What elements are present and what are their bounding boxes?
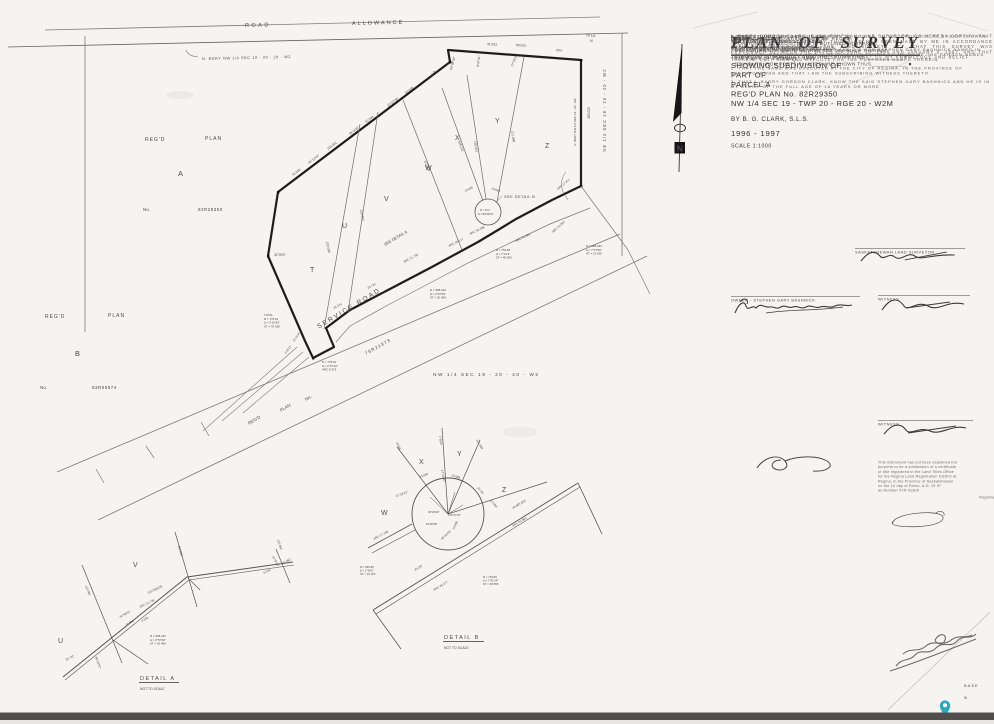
dim: 13.096 xyxy=(451,520,459,530)
ne-quarter-label: NE 1/4 SEC 19 - 20 - 20 - W2 xyxy=(602,68,607,151)
dim: 43°13'42" xyxy=(307,153,320,164)
dim: ARC 51.801 xyxy=(551,220,566,234)
dim: 135.021 xyxy=(473,141,479,153)
curve-mid-2: ST = 20.469 xyxy=(430,296,446,300)
dim: 112.882 xyxy=(177,545,184,557)
road-allowance-north-line xyxy=(45,17,600,30)
nw-quarter-label: NW 1/4 SEC 19 - 20 - 20 - W2 xyxy=(433,372,540,378)
dim: 46.665 (23) xyxy=(511,499,526,510)
culdesac-radius: R = 15.0 xyxy=(480,208,490,212)
dim: 34°09'0" xyxy=(274,253,286,257)
tp-corner-label: TP 1/4 xyxy=(586,34,596,38)
dim: ARC 45.177 xyxy=(448,237,465,248)
east-boundary-labels: E. BDRY NW 1/4 SEC 19 - 20 - W2 150.013 … xyxy=(551,68,607,233)
detail-b-leader xyxy=(496,196,502,202)
regd-road-word2: PLAN xyxy=(279,403,292,413)
b leader-curl xyxy=(186,50,198,57)
signature-stroke xyxy=(733,38,777,42)
road-tick xyxy=(146,446,154,458)
curve-upper-2: ST = 48.563 xyxy=(496,256,512,260)
regd-road-no: No. xyxy=(304,394,313,402)
dim: 9°47'41" xyxy=(476,55,481,67)
dim: 28.0 xyxy=(556,48,563,52)
affidavit-item: 3. THAT I, BARRY GORDON CLARK, KNOW THE … xyxy=(731,80,993,90)
curve-east-2: ST = 13.638 xyxy=(586,252,602,256)
smudge xyxy=(928,13,988,31)
lot-label-v: V xyxy=(384,196,389,203)
dim: ARC 27.313 xyxy=(556,178,571,191)
detail-b-road-corner-sw xyxy=(373,610,401,649)
iron-post xyxy=(267,255,269,257)
dim: 48°34'53" xyxy=(440,529,452,541)
dim: 86°52'57" xyxy=(94,656,102,669)
detail-a-lot-u: U xyxy=(58,638,63,645)
detail-a-title: DETAIL A xyxy=(140,676,176,682)
road-allowance-label-allowance: ALLOWANCE xyxy=(352,20,404,27)
dim: 80.003 xyxy=(516,43,526,48)
regd-label: REG'D xyxy=(45,314,65,320)
plan-label: PLAN xyxy=(205,136,222,142)
commissioner-signature xyxy=(751,452,841,478)
dim: 115.088 xyxy=(325,241,331,253)
dim: 150.013 xyxy=(587,107,591,119)
dim: ARC 45.177 xyxy=(432,580,448,592)
dim: 17°22'30" xyxy=(440,469,447,482)
subtitle-line: REG'D PLAN No. 82R29350 xyxy=(731,90,993,100)
scale-label: SCALE 1:1000 xyxy=(731,143,993,149)
detail-a-lot-v: V xyxy=(133,562,138,569)
north-arrow-blade xyxy=(673,44,682,122)
witness2-signature-block: WITNESS xyxy=(878,420,973,427)
dim: 5.034 xyxy=(263,568,272,575)
detail-a-crossing-2 xyxy=(175,532,197,607)
signature-stroke xyxy=(785,457,830,471)
lot-line-v-w xyxy=(403,100,462,250)
dim: 113.962 xyxy=(359,209,365,221)
dim: 60.08 xyxy=(395,442,402,451)
dim: 13.060 xyxy=(419,472,429,479)
detail-b-lot-y: Y xyxy=(457,451,462,458)
north-arrow: N xyxy=(673,44,686,172)
subtitle-line: NW 1/4 SEC 19 - TWP 20 - RGE 20 - W2M xyxy=(731,99,993,109)
commissioner-block: A COMMISSIONER FOR OATHS IN AND FOR THE … xyxy=(731,34,993,51)
title-and-certificates-panel: PLAN OF SURVEY SHOWING SUBDIVISION OF PA… xyxy=(731,34,994,724)
roads xyxy=(57,186,650,520)
see-detail-a-label: SEE DETAIL A xyxy=(383,229,408,247)
parcel-a-letter: A xyxy=(178,169,183,178)
dim: 110.682 xyxy=(276,539,284,551)
signature-stroke xyxy=(882,300,964,310)
dim: 13°51'08" xyxy=(292,331,302,342)
stamp-line: as Number 97R 01309 xyxy=(878,488,994,493)
registrar-label: Registrar xyxy=(878,495,994,500)
parcel-b-letter: B xyxy=(75,349,80,358)
dim: 13.005 xyxy=(464,185,474,193)
registration-stamp: This instrument has not been examined bu… xyxy=(878,460,994,500)
subdivision-boundary xyxy=(267,50,582,359)
dim: 27.084 xyxy=(489,499,498,509)
sworn-date-line: THIS 6 DAY OF February , 1997 xyxy=(731,53,993,64)
detail-b-subtitle: NOT TO SCALE xyxy=(444,646,469,650)
owner-signature xyxy=(731,296,856,318)
cul-de-sac-circle xyxy=(475,199,501,225)
dim: 44°58'31" xyxy=(119,609,132,619)
detail-b-spoke-4 xyxy=(448,482,547,514)
road-78R21573-north-edge xyxy=(57,234,620,472)
section-line-north xyxy=(8,33,628,47)
parcel-a-number: 82R29350 xyxy=(198,207,223,212)
parcel-outline xyxy=(268,50,581,358)
north-boundary-label: N. BDRY NW 1/4 SEC 19 - 20 - 20 - W2 xyxy=(202,55,291,61)
plan-label: PLAN xyxy=(108,313,125,319)
detail-a-spur-2 xyxy=(188,578,200,590)
north-letter: N xyxy=(677,144,683,154)
witness-signature-block: WITNESS xyxy=(878,295,970,302)
dim: 67°8'10" xyxy=(271,556,280,568)
dim: ARC 21.730 xyxy=(403,253,420,264)
surveyor-byline: BY B. G. CLARK, S.L.S. xyxy=(731,116,993,123)
lot-lines xyxy=(324,57,524,329)
detail-b-block-right-2: ST = 48.565 xyxy=(483,582,499,586)
detail-b-road-main xyxy=(373,483,578,610)
detail-b-road-main-2 xyxy=(376,487,580,614)
dim: 31.003 xyxy=(487,42,497,47)
east-boundary-label: E. BDRY NW 1/4 SEC 19 - 20 - W2 xyxy=(573,98,577,145)
detail-a-spur-1 xyxy=(113,640,148,664)
service-road-south-edge xyxy=(336,208,590,342)
sworn-date-post: , 1997 xyxy=(799,56,815,61)
registrar-signature xyxy=(884,507,949,530)
dim: 21°32'23" xyxy=(395,490,408,498)
tp-corner-label-2: M xyxy=(590,39,593,43)
surveyor-signature-block: SASKATCHEWAN LAND SURVEYOR xyxy=(855,248,965,255)
affidavit-item: 2. THAT THE SAME WAS EXECUTED AT THE CIT… xyxy=(731,66,993,76)
detail-b-road-corner-ne xyxy=(578,483,602,534)
road-allowance xyxy=(8,17,628,57)
witness2-signature xyxy=(878,420,973,440)
sworn-date-pre: THIS 6 DAY OF xyxy=(731,56,773,61)
dim: 64°56'38" xyxy=(426,522,438,526)
dim: 171.088 xyxy=(510,130,516,142)
smudge xyxy=(693,12,757,28)
road-allowance-label-road: ROAD xyxy=(245,22,271,29)
curve-total-3: ST = 78.428 xyxy=(264,324,280,328)
detail-a: V U 113.962 112.882 110.682 25.742 86°52… xyxy=(58,532,294,691)
detail-b-title: DETAIL B xyxy=(444,635,480,641)
regd-label: REG'D xyxy=(145,137,165,143)
dim: 1°59'4" xyxy=(438,436,443,446)
lot-label-u: U xyxy=(342,223,347,230)
see-detail-b-label: SEE DETAIL B xyxy=(504,194,535,199)
culdesac-delta: Δ = 89°59'16" xyxy=(478,212,494,216)
lot-line-dimensions: 115.088 113.962 113.800 108.242 135.021 … xyxy=(325,130,516,253)
iron-post xyxy=(312,357,314,359)
signature-stroke xyxy=(905,252,947,260)
signature-stroke xyxy=(906,302,950,308)
surveyor-signature xyxy=(855,248,963,265)
lot-line-x-y xyxy=(467,75,486,199)
no-label: No. xyxy=(40,385,47,390)
detail-b-lot-x: X xyxy=(419,459,424,466)
detail-a-block-2: ST = 20.469 xyxy=(150,642,166,646)
dim: 45.237 xyxy=(413,564,423,572)
detail-b-lot-z: Z xyxy=(502,487,507,494)
dim: 49°29'32" xyxy=(428,510,440,514)
smudge xyxy=(166,91,194,99)
dim: ARC 51.801 xyxy=(515,232,532,243)
road-tick xyxy=(201,422,209,436)
sworn-date-month-handwritten: February xyxy=(773,54,798,62)
quarter-lines xyxy=(85,33,622,332)
dim: 100°47'16" xyxy=(448,513,461,517)
smudge xyxy=(502,427,538,437)
road-tick xyxy=(96,469,104,483)
detail-b-spoke-1 xyxy=(397,447,448,514)
signature-stroke xyxy=(892,513,943,527)
expiry-handwriting xyxy=(731,34,779,45)
curve-jog-2: ARC 8.373 xyxy=(322,368,337,372)
detail-a-crossing-1 xyxy=(82,565,122,663)
survey-years: 1996 - 1997 xyxy=(731,130,993,139)
signature-stroke xyxy=(757,457,787,470)
dim: 2.003 xyxy=(141,616,150,623)
dim: 25.742 xyxy=(65,654,75,662)
survey-plan-page: ROAD ALLOWANCE TP 1/4 M N. BDRY NW 1/4 S… xyxy=(0,0,994,720)
dim: ARC 51.801 xyxy=(511,516,527,528)
commissioner-line: MY APPOINTMENT EXPIRES xyxy=(731,46,800,51)
east-spur-line-2 xyxy=(628,250,650,294)
regd-road-word1: REG'D xyxy=(247,414,262,426)
lot-line-y-z xyxy=(497,57,524,202)
iron-post xyxy=(277,191,279,193)
dim: 8°58'18" xyxy=(284,344,293,354)
service-road-annotations: SERVICE ROAD SEE DETAIL A ARC 21.730 25.… xyxy=(284,225,532,355)
detail-b-block-left-2: ST = 16.125 xyxy=(360,572,376,576)
dim: ARC 21.730 xyxy=(139,598,156,609)
lot-label-t: T xyxy=(310,267,315,274)
cul-de-sac: R = 15.0 Δ = 89°59'16" SEE DETAIL B 13.0… xyxy=(464,185,536,225)
no-label: No. xyxy=(143,207,150,212)
dim: ARC 27.188 xyxy=(373,530,390,541)
lot-label-z: Z xyxy=(545,143,550,150)
detail-b-lot-w: W xyxy=(381,510,388,517)
iron-post xyxy=(580,59,582,61)
witness-signature xyxy=(878,295,970,315)
expiry-underline xyxy=(802,45,832,50)
row-fan-line xyxy=(222,352,303,421)
detail-a-subtitle: NOT TO SCALE xyxy=(140,687,165,691)
lower-road-labels: 78R21573 REG'D PLAN No. NW 1/4 SEC 19 - … xyxy=(247,338,540,426)
regd-plan-a-label: REG'D PLAN A No. 82R29350 xyxy=(143,136,223,212)
owner-signature-block: OWNER - STEPHEN GARY BASHNICK xyxy=(731,296,860,303)
regd-plan-b-label: REG'D PLAN B No. 83R59574 xyxy=(40,313,125,390)
lot-label-y: Y xyxy=(495,118,500,125)
row-fan-line xyxy=(203,347,297,431)
dim: ARC 36.288 xyxy=(469,225,486,236)
service-road-label: SERVICE ROAD xyxy=(316,287,382,331)
dim: 11.082 xyxy=(282,557,292,565)
dim: 108.242 xyxy=(457,140,465,152)
dim: 31.8 xyxy=(430,70,437,78)
dim: 213.036(23) xyxy=(147,584,163,595)
commissioner-expiry-line: MY APPOINTMENT EXPIRES xyxy=(731,45,993,51)
parcel-b-number: 83R59574 xyxy=(92,385,117,390)
nw-edge-dimensions: 45.084 43°13'42" 105.091 46°3'30" 43.094… xyxy=(274,42,563,257)
detail-b: W X Y Z 21°32'23" 13.060 13.688 17°22'30… xyxy=(360,428,602,650)
